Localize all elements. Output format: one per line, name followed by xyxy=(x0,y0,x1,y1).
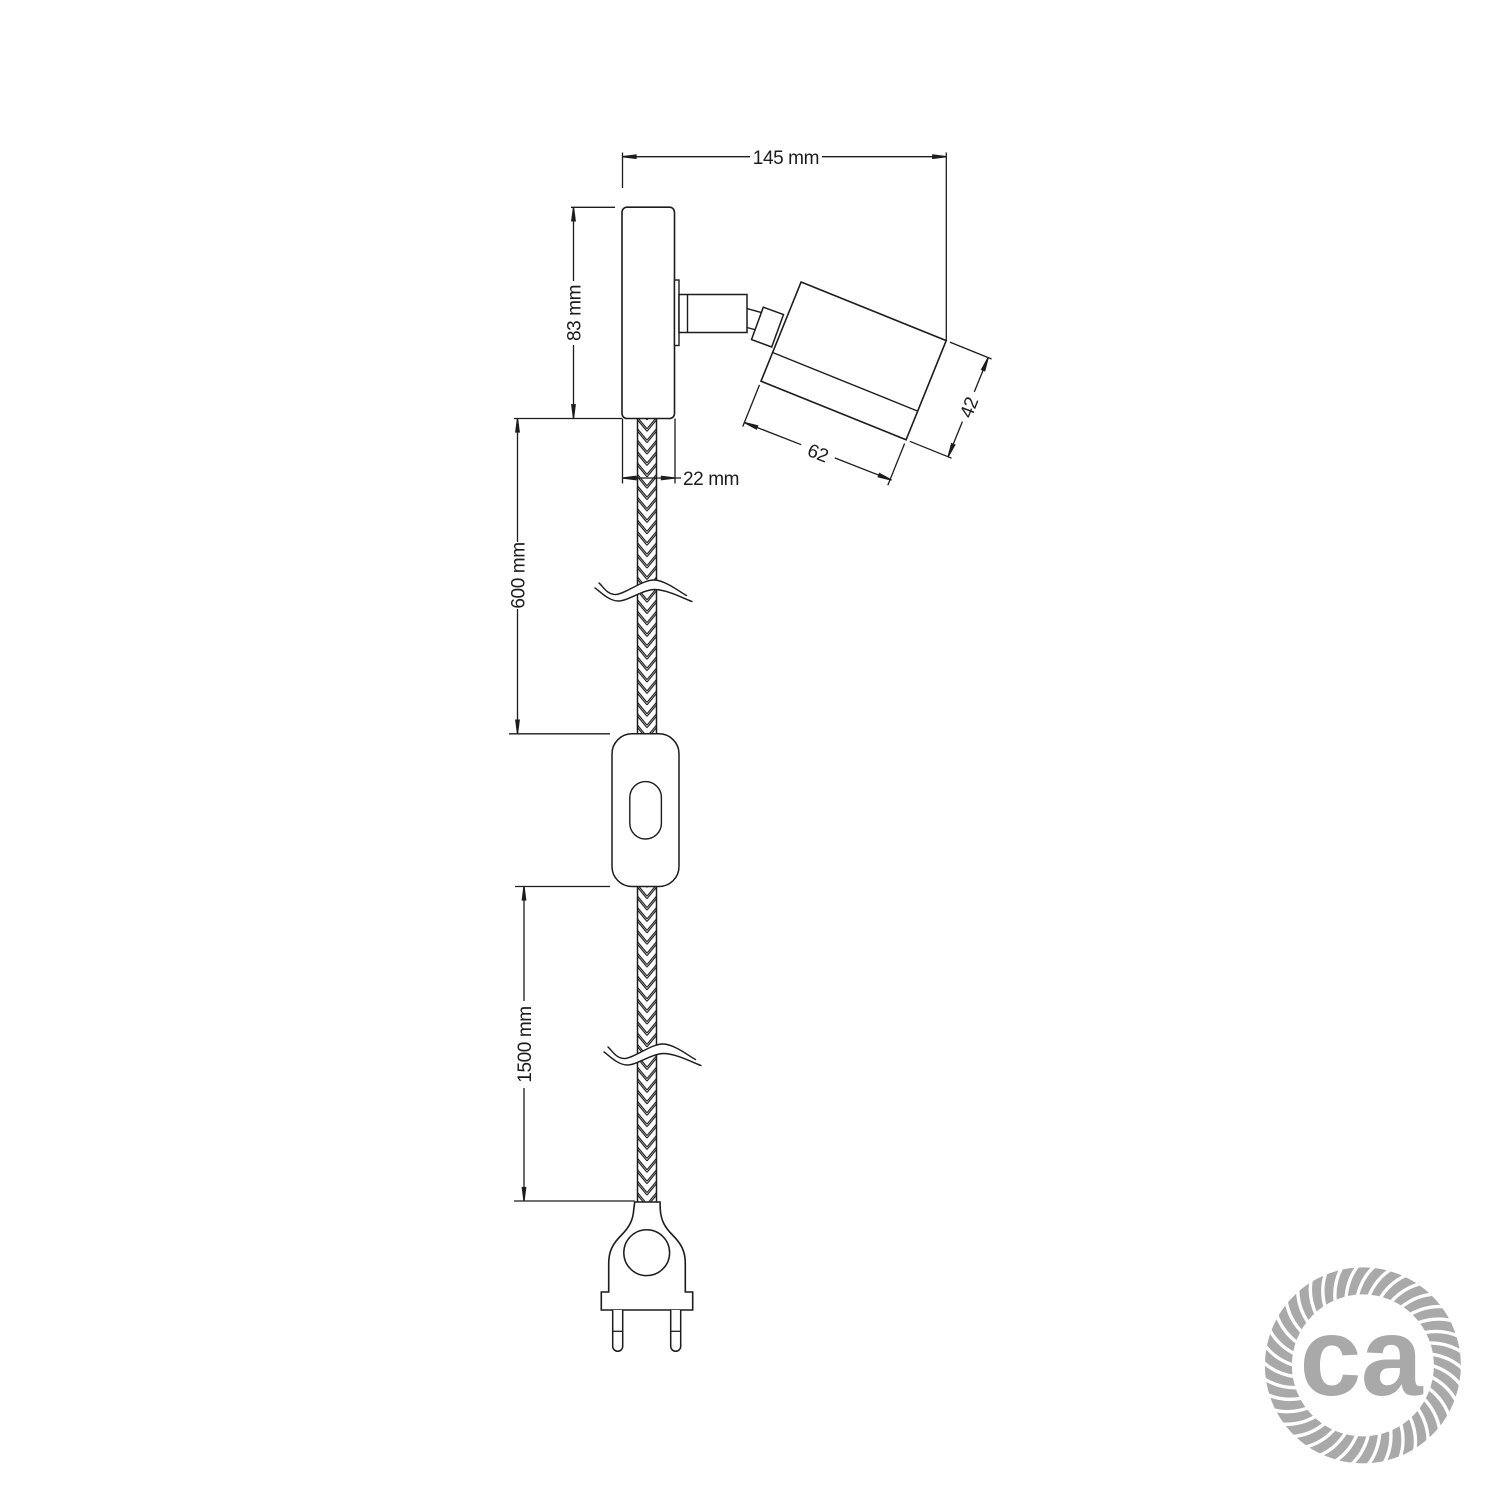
svg-text:600 mm: 600 mm xyxy=(509,542,530,608)
svg-text:1500 mm: 1500 mm xyxy=(515,1006,536,1082)
svg-text:ca: ca xyxy=(1300,1295,1424,1419)
svg-text:83 mm: 83 mm xyxy=(565,285,586,341)
svg-text:22 mm: 22 mm xyxy=(683,469,739,490)
svg-text:145 mm: 145 mm xyxy=(753,148,819,169)
